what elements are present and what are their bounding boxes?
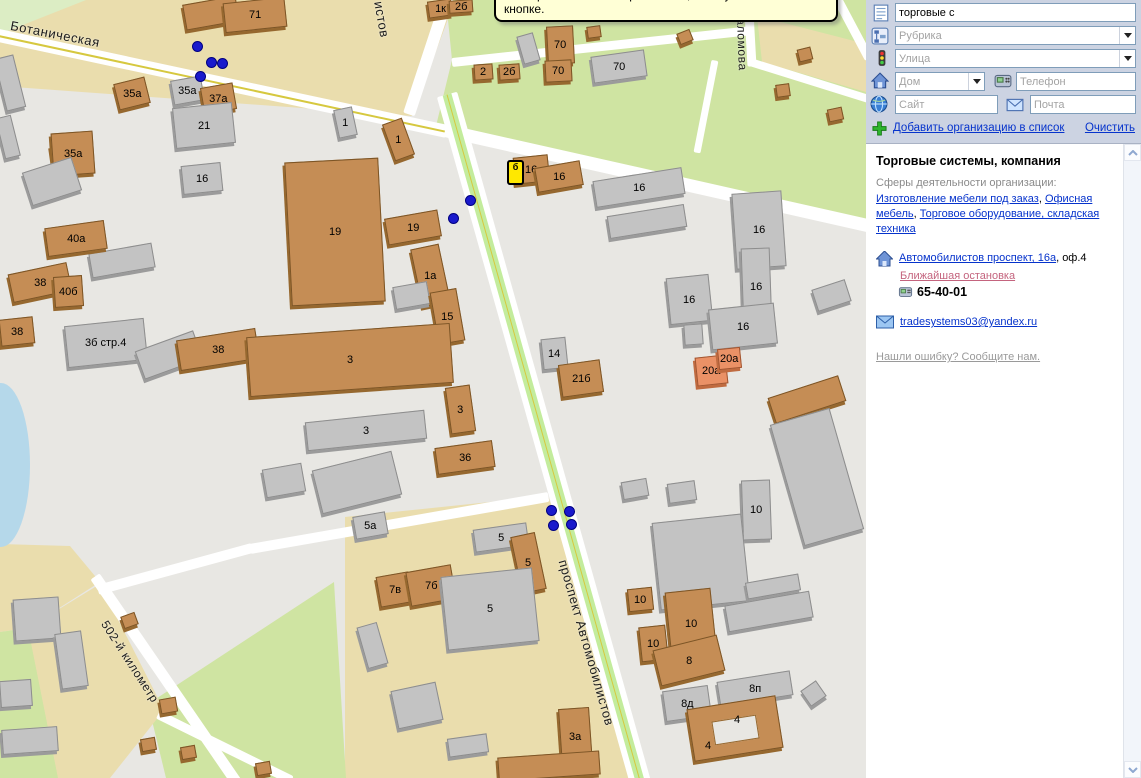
house-icon	[871, 72, 889, 90]
map-building[interactable]: 10	[627, 587, 654, 612]
scrollbar[interactable]	[1123, 144, 1141, 778]
building-number-label: 15	[441, 311, 453, 323]
route-point-dot	[548, 520, 559, 531]
building-number-label: 16	[737, 321, 749, 333]
building-number-label: 10	[634, 594, 646, 606]
building-number-label: 16	[553, 171, 565, 183]
house-select[interactable]: Дом	[895, 72, 985, 91]
map-building[interactable]: 3	[246, 323, 454, 397]
chevron-down-icon[interactable]	[968, 73, 984, 90]
building-number-label: 3а	[569, 731, 581, 743]
building-number-label: 38	[212, 344, 224, 356]
building-number-label: 5	[498, 532, 504, 544]
building-number-label: 1а	[424, 270, 436, 282]
route-point-dot	[217, 58, 228, 69]
map-building[interactable]	[22, 157, 82, 206]
report-error-link[interactable]: Нашли ошибку? Сообщите нам.	[876, 351, 1040, 363]
rubric-placeholder: Рубрика	[896, 30, 942, 42]
chevron-up-icon	[1128, 150, 1138, 156]
organization-email-link[interactable]: tradesystems03@yandex.ru	[900, 316, 1037, 328]
spheres-label: Сферы деятельности организации:	[876, 177, 1118, 189]
building-number-label: 71	[249, 9, 261, 21]
route-point-dot	[465, 195, 476, 206]
map-building[interactable]	[800, 680, 826, 706]
phone-icon	[898, 285, 913, 299]
building-number-label: 35а	[123, 88, 141, 100]
organization-list-icon	[872, 4, 890, 22]
building-number-label: 3	[363, 425, 369, 437]
clear-link[interactable]: Очистить	[1085, 122, 1135, 134]
map-building[interactable]: 2б	[498, 63, 520, 80]
scroll-up-button[interactable]	[1124, 144, 1141, 161]
map-building[interactable]	[667, 480, 698, 504]
map-building[interactable]: 21б	[558, 359, 604, 398]
building-number-label: 2б	[503, 66, 515, 78]
traffic-light-icon	[873, 49, 891, 67]
app-window: Ботаническаяистоваломовапроспект Автомоб…	[0, 0, 1141, 778]
building-number-label: 19	[407, 222, 419, 234]
building-number-label: 1	[395, 134, 401, 146]
building-number-label: 16	[750, 281, 762, 293]
building-number-label: 10	[647, 638, 659, 650]
building-number-label: 36	[459, 452, 471, 464]
tooltip-text: мастер обновления справочника, кликнув м…	[504, 0, 828, 16]
organization-title: Торговые системы, компания	[876, 154, 1118, 168]
map-building[interactable]: 20а	[717, 347, 742, 370]
building-number-label: 3б стр.4	[85, 337, 126, 349]
map-building[interactable]: 3	[445, 384, 476, 434]
organization-phone: 65-40-01	[917, 285, 967, 299]
building-number-label: 3	[457, 404, 463, 416]
route-point-dot	[566, 519, 577, 530]
building-number-label: 10	[685, 618, 697, 630]
map-building[interactable]: 4	[731, 714, 743, 726]
phone-row: 65-40-01	[898, 285, 1118, 299]
chevron-down-icon[interactable]	[1119, 27, 1135, 44]
building-number-label: 16	[683, 294, 695, 306]
map-building[interactable]	[586, 25, 602, 39]
map-building[interactable]	[1, 726, 59, 755]
map-building[interactable]	[811, 279, 851, 312]
building-number-label: 19	[329, 226, 341, 238]
house-icon	[876, 251, 893, 267]
map-building[interactable]	[180, 745, 197, 760]
building-number-label: 38	[34, 277, 46, 289]
building-number-label: 14	[548, 348, 560, 360]
street-label: аломова	[734, 18, 750, 71]
building-number-label: 70	[552, 65, 564, 77]
route-point-dot	[206, 57, 217, 68]
chevron-down-icon[interactable]	[1119, 50, 1135, 67]
map-building[interactable]: 19	[384, 210, 442, 246]
building-number-label: 3	[347, 354, 353, 366]
building-number-label: 16	[633, 182, 645, 194]
map-building[interactable]	[607, 204, 688, 239]
map-building[interactable]	[0, 679, 33, 708]
phone-input[interactable]	[1016, 72, 1136, 91]
spheres-links: Изготовление мебели под заказ, Офисная м…	[876, 192, 1114, 237]
building-number-label: 40а	[67, 233, 85, 245]
search-panel: Рубрика Улица Дом	[866, 0, 1141, 778]
map-building[interactable]	[140, 737, 157, 752]
site-input[interactable]	[895, 95, 998, 114]
map-building[interactable]: 3б стр.4	[64, 318, 148, 368]
building-number-label: 20а	[720, 353, 738, 365]
map-building[interactable]	[770, 408, 864, 546]
street-placeholder: Улица	[896, 53, 930, 65]
building-number-label: 1	[342, 117, 348, 129]
mail-icon	[876, 315, 894, 329]
building-number-label: 70	[613, 61, 625, 73]
building-number-label: 10	[750, 504, 762, 516]
route-point-dot	[564, 506, 575, 517]
map-building[interactable]: 16	[666, 274, 714, 325]
map-building[interactable]	[262, 463, 306, 499]
building-number-label: 7б	[425, 580, 437, 592]
rubric-select[interactable]: Рубрика	[895, 26, 1136, 45]
building-number-label: 2	[480, 66, 486, 78]
map-building[interactable]: 3	[305, 410, 427, 451]
street-select[interactable]: Улица	[895, 49, 1136, 68]
search-input[interactable]	[895, 3, 1136, 22]
sphere-link[interactable]: Изготовление мебели под заказ	[876, 193, 1039, 205]
building-number-label: 8	[686, 655, 692, 667]
map-building[interactable]: 16	[181, 162, 224, 195]
building-number-label: 8п	[749, 683, 761, 695]
map-building[interactable]	[159, 697, 178, 715]
map-building[interactable]: 40б	[53, 275, 84, 308]
rubric-tree-icon	[871, 27, 889, 45]
address-row: Автомобилистов проспект, 16а, оф.4	[876, 251, 1118, 267]
map-building[interactable]: 4	[702, 740, 714, 752]
building-number-label: 5	[487, 603, 493, 615]
building-number-label: 5а	[364, 520, 376, 532]
building-number-label: 4	[734, 714, 740, 726]
building-number-label: 21б	[572, 373, 591, 385]
building-number-label: 1к	[435, 3, 446, 15]
route-point-dot	[546, 505, 557, 516]
organization-address-link[interactable]: Автомобилистов проспект, 16а	[899, 252, 1056, 264]
building-number-label: 16	[196, 173, 208, 185]
map-building[interactable]: 21	[172, 102, 236, 149]
route-point-dot	[448, 213, 459, 224]
mail-input[interactable]	[1030, 95, 1136, 114]
report-error-row: Нашли ошибку? Сообщите нам.	[876, 347, 1118, 365]
office-suffix: , оф.4	[1056, 252, 1086, 264]
building-number-label: 40б	[59, 286, 78, 298]
map-building[interactable]: 70	[544, 59, 572, 82]
map-building[interactable]: 2б	[449, 0, 474, 14]
mail-icon	[1006, 96, 1024, 114]
map-building[interactable]: 5	[440, 567, 539, 650]
plus-icon	[872, 121, 887, 136]
map-building[interactable]: 2	[473, 63, 493, 80]
building-number-label: 2б	[455, 1, 467, 13]
map-building[interactable]	[312, 451, 402, 515]
map-building[interactable]	[255, 761, 272, 776]
map-building[interactable]	[0, 115, 21, 160]
map-building[interactable]: 19	[284, 158, 385, 307]
route-point-dot	[192, 41, 203, 52]
building-number-label: 35а	[178, 85, 196, 97]
actions-row: Добавить организацию в список Очистить	[872, 121, 1135, 139]
organization-card: Торговые системы, компания Сферы деятель…	[866, 144, 1124, 778]
globe-icon	[870, 95, 888, 113]
add-organization-link[interactable]: Добавить организацию в список	[893, 122, 1064, 134]
selected-organization-marker[interactable]: б	[507, 160, 524, 185]
phone-icon	[994, 72, 1012, 90]
tooltip: мастер обновления справочника, кликнув м…	[494, 0, 838, 22]
house-placeholder: Дом	[896, 76, 920, 88]
map-canvas[interactable]: Ботаническаяистоваломовапроспект Автомоб…	[0, 0, 866, 778]
pond	[0, 383, 30, 547]
chevron-down-icon	[1128, 767, 1138, 773]
map-building[interactable]: 10	[741, 480, 772, 541]
building-number-label: 16	[753, 224, 765, 236]
map-building[interactable]	[775, 83, 791, 98]
nearest-stop-link[interactable]: Ближайшая остановка	[900, 270, 1015, 282]
scroll-down-button[interactable]	[1124, 761, 1141, 778]
building-number-label: 70	[554, 39, 566, 51]
map-building[interactable]	[621, 478, 650, 500]
nearest-stop-row: Ближайшая остановка	[900, 270, 1118, 282]
map-building[interactable]	[683, 323, 703, 345]
search-form: Рубрика Улица Дом	[866, 0, 1141, 144]
map-building[interactable]: 16	[708, 303, 778, 351]
road	[97, 543, 254, 595]
route-point-dot	[195, 71, 206, 82]
building-number-label: 7в	[389, 584, 401, 596]
building-number-label: 4	[705, 740, 711, 752]
building-number-label: 21	[198, 120, 210, 132]
map-building[interactable]: 36	[434, 440, 495, 475]
map-building[interactable]: 38	[0, 316, 35, 346]
email-row: tradesystems03@yandex.ru	[876, 315, 1118, 329]
building-number-label: 38	[11, 326, 23, 338]
